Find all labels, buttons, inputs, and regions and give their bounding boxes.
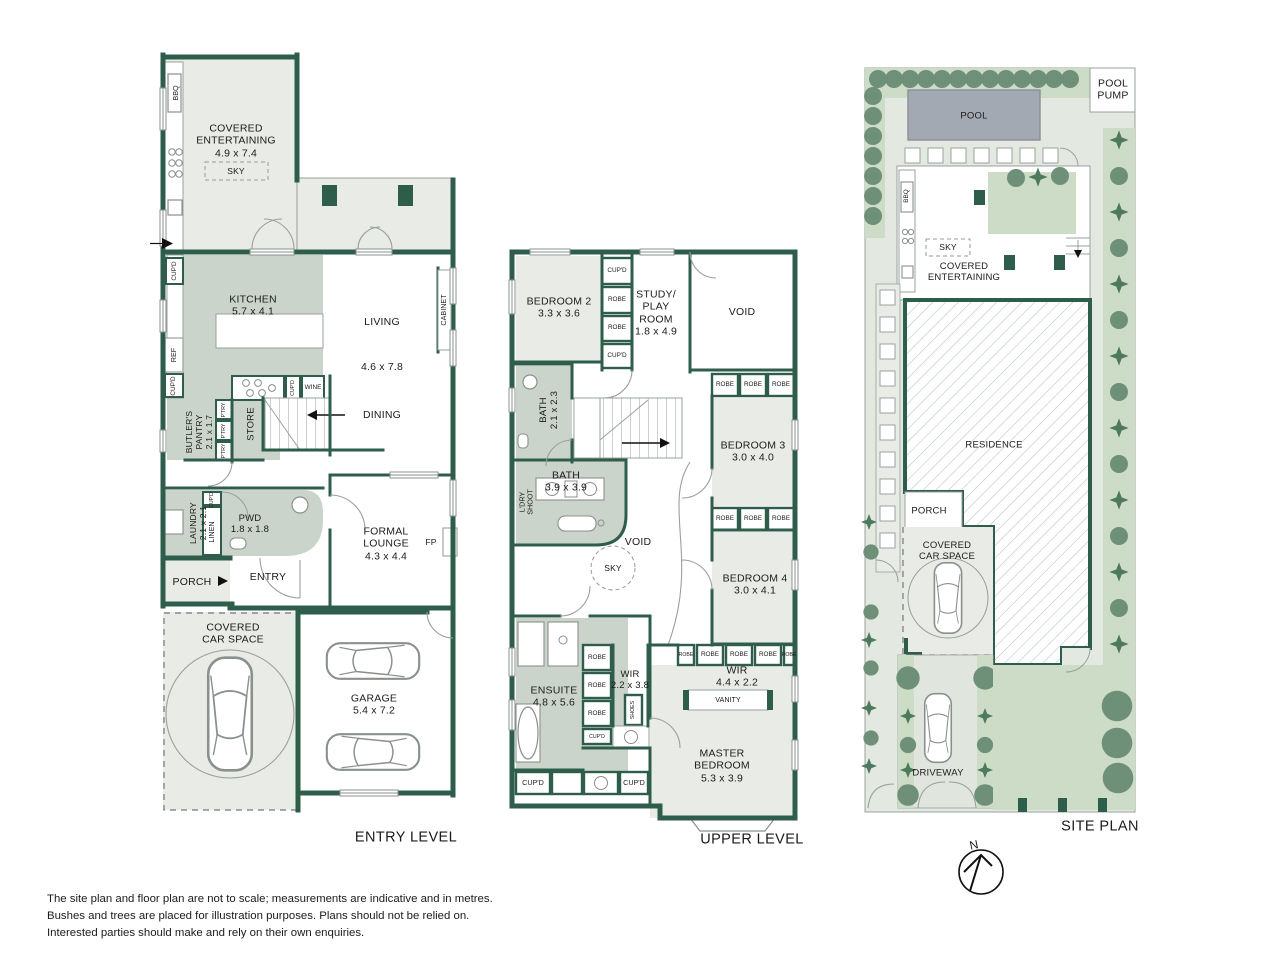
entry-garage-label: GARAGE 5.4 x 7.2 (351, 693, 397, 718)
entry-bbq-label: BBQ (172, 85, 180, 100)
upper-robe-label: ROBE (772, 381, 790, 389)
entry-wine-label: WINE (305, 384, 322, 392)
entry-formal-lounge-label: FORMAL LOUNGE 4.3 x 4.4 (363, 525, 409, 562)
entry-pwd-label: PWD 1.8 x 1.8 (231, 513, 269, 535)
upper-robe-label: ROBE (716, 515, 734, 523)
upper-cupd-bottom-label: CUP'D (522, 779, 544, 787)
upper-robe-label: ROBE (772, 515, 790, 523)
entry-butlers-pantry-label: BUTLER'S PANTRY 2.1 x 1.7 (184, 411, 214, 453)
upper-level-title: UPPER LEVEL (700, 831, 804, 848)
upper-robe-label: ROBE (588, 682, 606, 690)
entry-covered-car-space-label: COVERED CAR SPACE (202, 622, 264, 647)
site-sky-label: SKY (939, 242, 957, 252)
upper-robe-label: ROBE (759, 651, 777, 659)
entry-linen-label: LINEN (208, 521, 216, 542)
upper-robe-label: ROBE (608, 296, 626, 304)
entry-level-title: ENTRY LEVEL (355, 829, 457, 846)
entry-ptry-label: P'TRY (221, 403, 227, 418)
upper-robe-label: ROBE (744, 381, 762, 389)
upper-wir-master-label: WIR 4.4 x 2.2 (716, 665, 758, 690)
upper-wir-label: WIR 2.2 x 3.8 (611, 669, 649, 691)
upper-robe-label: ROBE (716, 381, 734, 389)
upper-vanity-label: VANITY (715, 696, 740, 704)
upper-ldry-shoot-label: L'DRY SHOOT (519, 489, 536, 515)
upper-cupd-label: CUP'D (607, 352, 626, 360)
entry-ptry-label: P'TRY (221, 424, 227, 439)
entry-covered-entertaining-label: COVERED ENTERTAINING 4.9 x 7.4 (196, 122, 276, 159)
entry-cupd-top-label: CUP'D (171, 261, 179, 280)
entry-sky-label: SKY (227, 166, 245, 176)
site-driveway-label: DRIVEWAY (912, 767, 963, 778)
entry-store-label: STORE (245, 407, 256, 441)
site-bbq-label: BBQ (903, 189, 911, 203)
site-covered-entertaining-label: COVERED ENTERTAINING (928, 261, 1000, 283)
upper-cupd-label: CUP'D (607, 267, 626, 275)
site-pool-pump-label: POOL PUMP (1097, 78, 1128, 103)
disclaimer-line-2: Bushes and trees are placed for illustra… (47, 910, 469, 922)
upper-void-mid-label: VOID (625, 536, 651, 548)
site-pool-label: POOL (960, 110, 987, 121)
disclaimer-line-3: Interested parties should make and rely … (47, 927, 364, 939)
entry-cupd-stove-label: CUP'D (290, 380, 296, 396)
entry-entry-label: ENTRY (250, 571, 286, 583)
site-plan-title: SITE PLAN (1061, 818, 1139, 835)
entry-living-label: LIVING (364, 316, 400, 328)
upper-robe-label: ROBE (588, 654, 606, 662)
entry-cupd-laundry-label: CUP'D (209, 492, 215, 508)
compass-icon (959, 850, 1003, 894)
upper-study-label: STUDY/ PLAY ROOM 1.8 x 4.9 (635, 288, 677, 338)
upper-bath-label: BATH 3.9 x 3.9 (545, 470, 587, 495)
site-residence-label: RESIDENCE (965, 439, 1022, 450)
entry-porch-label: PORCH (173, 576, 212, 588)
site-porch-label: PORCH (911, 505, 946, 516)
upper-bath2-label: BATH 2.1 x 2.3 (538, 391, 560, 429)
upper-ensuite-label: ENSUITE 4.8 x 5.6 (531, 685, 578, 710)
upper-sky-label: SKY (604, 563, 622, 573)
site-covered-car-space-label: COVERED CAR SPACE (919, 540, 975, 562)
upper-robe-label: ROBE (730, 651, 748, 659)
upper-bedroom4-label: BEDROOM 4 3.0 x 4.1 (723, 573, 788, 598)
upper-robe-label: ROBE (588, 710, 606, 718)
entry-ref-label: REF (170, 348, 178, 362)
disclaimer-line-1: The site plan and floor plan are not to … (47, 893, 493, 905)
upper-bedroom3-label: BEDROOM 3 3.0 x 4.0 (721, 440, 786, 465)
upper-robe-label: ROBE (701, 651, 719, 659)
entry-fp-label: FP (425, 537, 436, 547)
upper-robe-label: ROBE (608, 324, 626, 332)
entry-dining-label: DINING (363, 409, 401, 421)
entry-cabinet-label: CABINET (440, 294, 448, 325)
entry-ptry-label: P'TRY (221, 444, 227, 459)
entry-laundry-label: LAUNDRY 2.1 x 2.1 (188, 502, 208, 544)
upper-cupd-label: CUP'D (589, 734, 605, 740)
upper-robe-label: ROBE (782, 652, 797, 658)
upper-shoes-label: SHOES (630, 701, 636, 719)
upper-cupd-bottom2-label: CUP'D (623, 779, 645, 787)
entry-living-dims-label: 4.6 x 7.8 (361, 361, 403, 373)
floorplan-canvas (0, 0, 1280, 960)
upper-void-label: VOID (729, 306, 755, 318)
entry-cupd-mid-label: CUP'D (170, 376, 178, 395)
upper-robe-label: ROBE (744, 515, 762, 523)
upper-bedroom2-label: BEDROOM 2 3.3 x 3.6 (527, 296, 592, 321)
floorplan-page: BBQ COVERED ENTERTAINING 4.9 x 7.4 SKY C… (0, 0, 1280, 960)
upper-robe-label: ROBE (679, 652, 694, 658)
upper-master-bedroom-label: MASTER BEDROOM 5.3 x 3.9 (694, 747, 750, 784)
entry-kitchen-label: KITCHEN 5.7 x 4.1 (229, 294, 277, 319)
